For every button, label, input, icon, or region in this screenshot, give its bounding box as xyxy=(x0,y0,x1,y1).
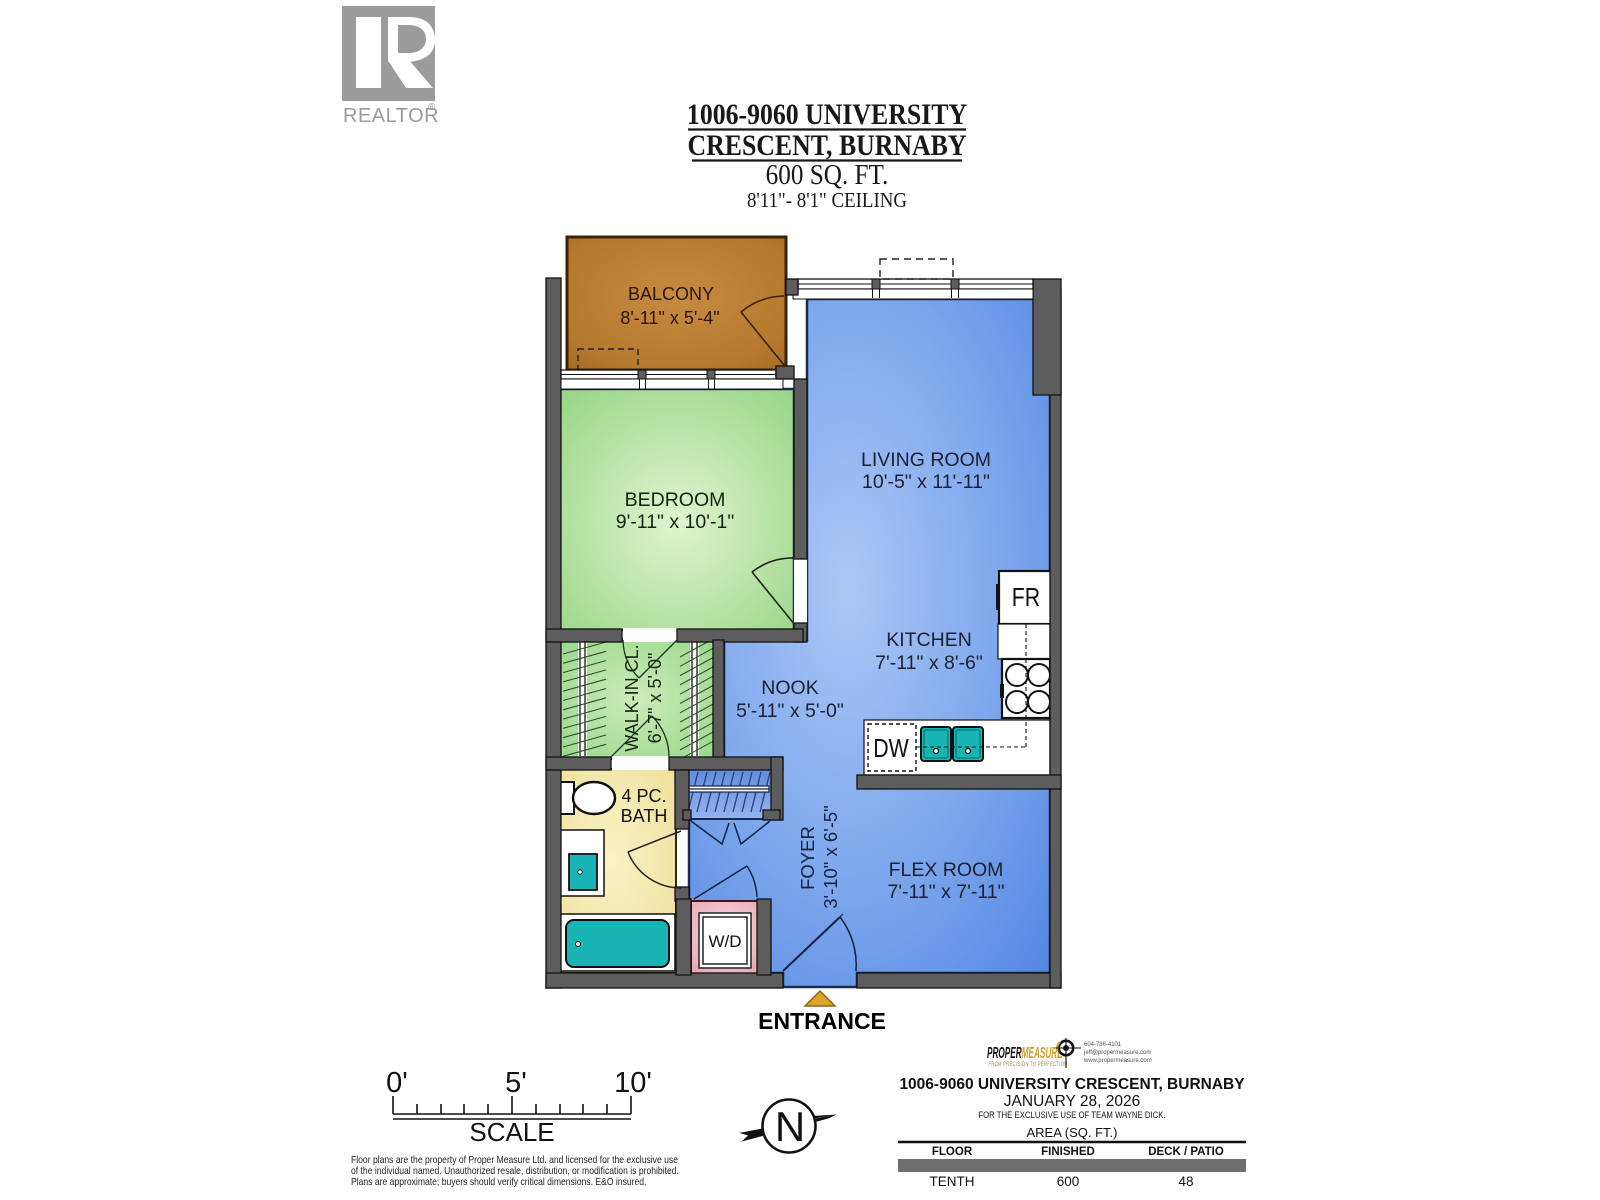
svg-text:FR: FR xyxy=(1012,583,1040,613)
svg-text:7'-11" x 8'-6": 7'-11" x 8'-6" xyxy=(875,652,983,674)
svg-text:DW: DW xyxy=(873,734,909,764)
svg-text:WALK-IN CL.: WALK-IN CL. xyxy=(622,644,642,751)
svg-text:BALCONY: BALCONY xyxy=(628,284,714,304)
svg-text:5'-11" x 5'-0": 5'-11" x 5'-0" xyxy=(736,700,844,722)
svg-text:Floor plans are the property o: Floor plans are the property of Proper M… xyxy=(351,1154,678,1165)
svg-text:of the individual named. Unaut: of the individual named. Unauthorized re… xyxy=(351,1165,679,1176)
svg-text:4 PC.: 4 PC. xyxy=(621,786,666,806)
svg-text:FINISHED: FINISHED xyxy=(1041,1146,1095,1158)
svg-text:AREA (SQ. FT.): AREA (SQ. FT.) xyxy=(1026,1125,1117,1140)
svg-text:5': 5' xyxy=(505,1067,527,1099)
svg-text:JANUARY 28, 2026: JANUARY 28, 2026 xyxy=(1004,1093,1140,1110)
svg-text:10': 10' xyxy=(614,1067,652,1099)
svg-text:N: N xyxy=(775,1103,805,1150)
svg-text:3'-10" x 6'-5": 3'-10" x 6'-5" xyxy=(820,805,841,909)
svg-text:BATH: BATH xyxy=(621,806,668,826)
svg-text:FLOOR: FLOOR xyxy=(932,1146,973,1158)
svg-text:LIVING ROOM: LIVING ROOM xyxy=(861,449,991,471)
svg-text:ENTRANCE: ENTRANCE xyxy=(758,1008,886,1034)
svg-text:SCALE: SCALE xyxy=(469,1117,554,1147)
svg-text:Plans are approximate; buyers: Plans are approximate; buyers should ver… xyxy=(351,1176,646,1187)
svg-text:FLEX ROOM: FLEX ROOM xyxy=(889,859,1004,881)
svg-text:8'11"- 8'1" CEILING: 8'11"- 8'1" CEILING xyxy=(747,189,907,212)
svg-text:FROM PRECISION TO PERFECTION: FROM PRECISION TO PERFECTION xyxy=(988,1061,1067,1068)
svg-text:600 SQ. FT.: 600 SQ. FT. xyxy=(766,159,889,191)
svg-text:PROPERMEASURE: PROPERMEASURE xyxy=(987,1044,1063,1061)
svg-text:6'-7" x 5'-0": 6'-7" x 5'-0" xyxy=(645,653,665,744)
svg-text:NOOK: NOOK xyxy=(761,677,818,699)
svg-text:0': 0' xyxy=(386,1067,408,1099)
svg-text:8'-11" x 5'-4": 8'-11" x 5'-4" xyxy=(620,308,719,328)
svg-text:CRESCENT, BURNABY: CRESCENT, BURNABY xyxy=(688,129,967,162)
svg-text:KITCHEN: KITCHEN xyxy=(886,629,972,651)
svg-text:9'-11" x 10'-1": 9'-11" x 10'-1" xyxy=(616,511,735,533)
svg-text:REALTOR: REALTOR xyxy=(343,105,439,127)
svg-text:1006-9060 UNIVERSITY: 1006-9060 UNIVERSITY xyxy=(687,98,967,131)
svg-text:®: ® xyxy=(428,102,436,113)
svg-text:48: 48 xyxy=(1178,1174,1193,1189)
svg-text:FOYER: FOYER xyxy=(797,826,818,890)
svg-text:jeff@propermeasure.com: jeff@propermeasure.com xyxy=(1083,1049,1151,1056)
svg-text:600: 600 xyxy=(1057,1174,1080,1189)
svg-text:BEDROOM: BEDROOM xyxy=(625,489,726,511)
svg-text:604-786-4101: 604-786-4101 xyxy=(1084,1041,1122,1048)
svg-text:10'-5" x 11'-11": 10'-5" x 11'-11" xyxy=(862,471,990,493)
svg-text:W/D: W/D xyxy=(708,932,741,951)
svg-text:TENTH: TENTH xyxy=(930,1174,975,1189)
svg-text:FOR THE EXCLUSIVE USE OF TEAM: FOR THE EXCLUSIVE USE OF TEAM WAYNE DICK… xyxy=(978,1109,1165,1120)
svg-text:www.propermeasure.com: www.propermeasure.com xyxy=(1083,1057,1152,1064)
svg-text:7'-11" x 7'-11": 7'-11" x 7'-11" xyxy=(887,881,1004,903)
svg-text:DECK / PATIO: DECK / PATIO xyxy=(1148,1146,1224,1158)
svg-text:1006-9060 UNIVERSITY CRESCENT,: 1006-9060 UNIVERSITY CRESCENT, BURNABY xyxy=(899,1076,1245,1093)
